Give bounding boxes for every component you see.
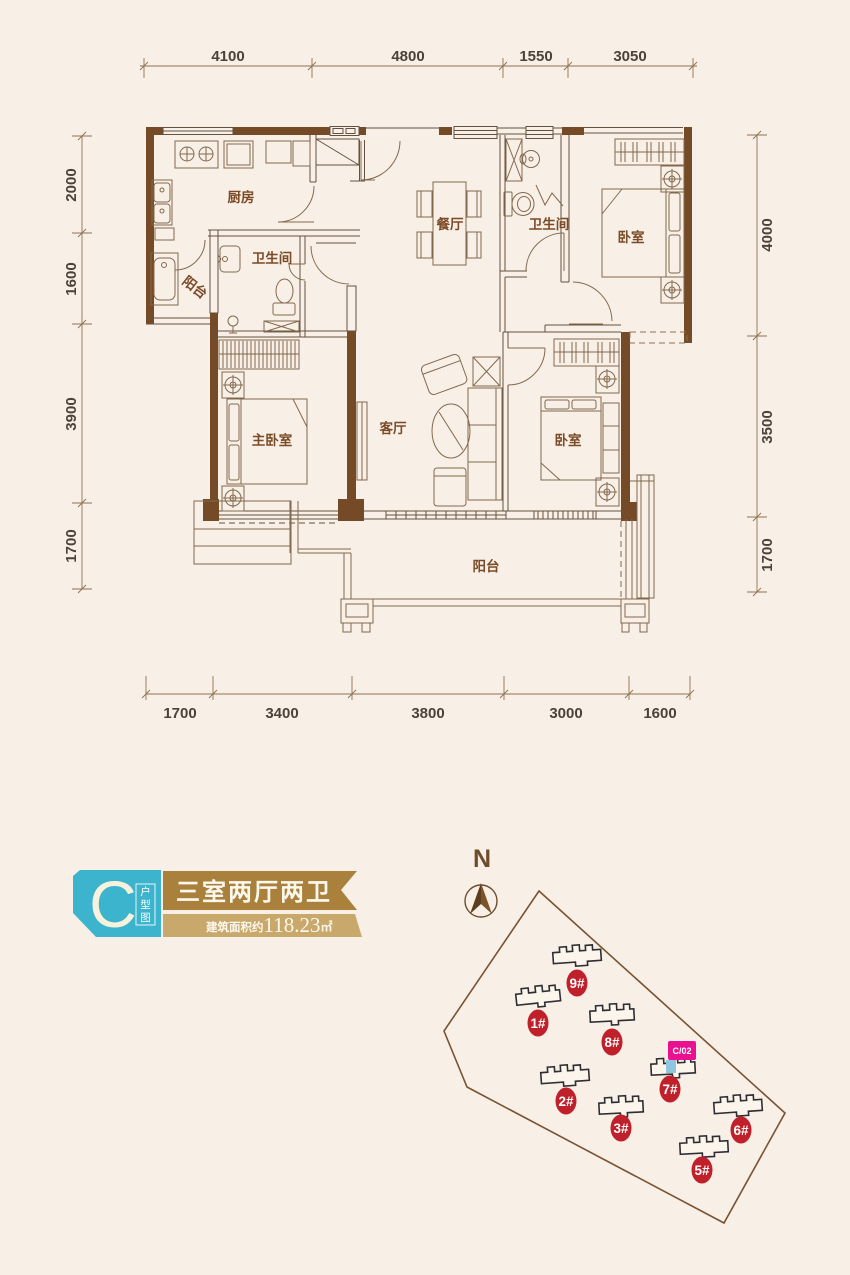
- svg-text:3800: 3800: [411, 705, 444, 722]
- svg-text:6#: 6#: [733, 1123, 749, 1138]
- svg-text:3050: 3050: [613, 48, 646, 65]
- svg-text:1600: 1600: [63, 262, 80, 295]
- svg-text:C/02: C/02: [672, 1046, 691, 1056]
- svg-text:餐厅: 餐厅: [436, 216, 464, 232]
- svg-text:9#: 9#: [569, 976, 585, 991]
- svg-text:图: 图: [140, 912, 151, 924]
- svg-text:1700: 1700: [759, 538, 776, 571]
- svg-text:3400: 3400: [265, 705, 298, 722]
- svg-text:型: 型: [140, 898, 151, 911]
- svg-text:卫生间: 卫生间: [529, 216, 570, 232]
- svg-text:1700: 1700: [63, 529, 80, 562]
- svg-text:户: 户: [140, 885, 151, 898]
- svg-text:3000: 3000: [549, 705, 582, 722]
- svg-text:阳台: 阳台: [473, 558, 500, 574]
- svg-text:1700: 1700: [163, 705, 196, 722]
- svg-text:8#: 8#: [604, 1035, 620, 1050]
- svg-text:4800: 4800: [391, 48, 424, 65]
- svg-text:4000: 4000: [759, 218, 776, 251]
- svg-text:卫生间: 卫生间: [252, 250, 293, 266]
- svg-text:1#: 1#: [530, 1016, 546, 1031]
- svg-text:卧室: 卧室: [618, 229, 646, 245]
- svg-text:4100: 4100: [211, 48, 244, 65]
- svg-text:1550: 1550: [519, 48, 552, 65]
- svg-text:主卧室: 主卧室: [252, 432, 293, 448]
- svg-text:7#: 7#: [662, 1082, 678, 1097]
- svg-text:卧室: 卧室: [555, 432, 583, 448]
- svg-text:厨房: 厨房: [228, 189, 255, 205]
- svg-text:3500: 3500: [759, 410, 776, 443]
- svg-text:N: N: [473, 845, 491, 873]
- svg-text:3#: 3#: [613, 1121, 629, 1136]
- svg-text:5#: 5#: [694, 1163, 710, 1178]
- svg-text:2#: 2#: [558, 1094, 574, 1109]
- svg-text:2000: 2000: [63, 168, 80, 201]
- svg-text:客厅: 客厅: [379, 420, 407, 436]
- svg-text:三室两厅两卫: 三室两厅两卫: [176, 878, 332, 906]
- svg-text:3900: 3900: [63, 397, 80, 430]
- svg-text:C: C: [89, 867, 137, 941]
- svg-text:1600: 1600: [643, 705, 676, 722]
